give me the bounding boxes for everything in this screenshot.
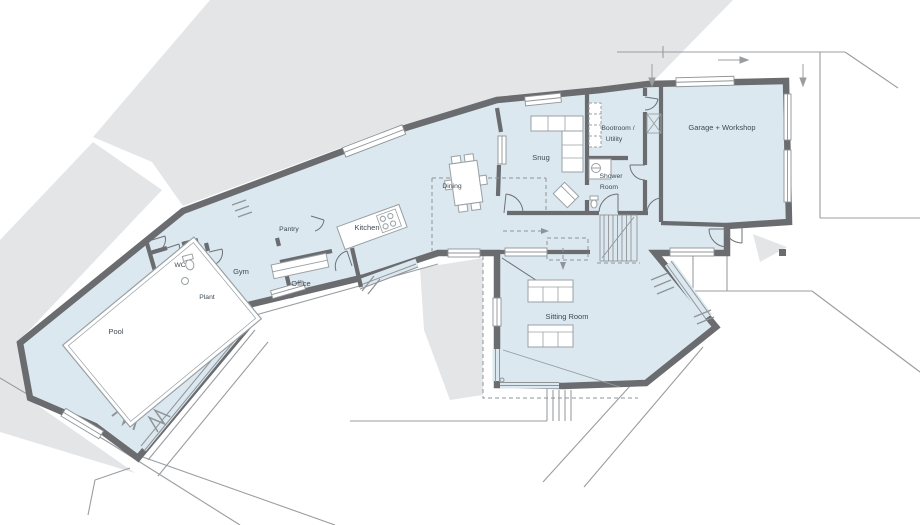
label-wc: WC bbox=[174, 262, 185, 269]
porch-post bbox=[779, 249, 786, 256]
sitting-sofa-2 bbox=[528, 325, 573, 347]
terrain-south-patch bbox=[420, 258, 483, 400]
label-snug: Snug bbox=[532, 153, 550, 162]
floor-plan-drawing: Pool WC Plant Gym Office Pantry Kitchen … bbox=[0, 0, 920, 525]
label-shower-line1: Shower bbox=[599, 173, 623, 180]
label-plant: Plant bbox=[199, 294, 215, 301]
staircase bbox=[600, 215, 637, 261]
label-pantry: Pantry bbox=[279, 226, 299, 233]
label-sitting: Sitting Room bbox=[546, 312, 589, 321]
site-porch-lines bbox=[693, 256, 920, 372]
terrain-porch-patch bbox=[753, 234, 787, 262]
label-bootroom-line1: Bootroom / bbox=[601, 125, 634, 132]
bootroom-cabinets bbox=[589, 103, 601, 147]
wc-basin bbox=[182, 278, 189, 285]
label-bootroom-line2: Utility bbox=[606, 136, 623, 143]
label-dining: Dining bbox=[442, 183, 461, 190]
label-gym: Gym bbox=[233, 267, 249, 276]
label-pool: Pool bbox=[108, 327, 123, 336]
label-shower-line2: Room bbox=[600, 184, 618, 191]
label-kitchen: Kitchen bbox=[354, 223, 379, 232]
label-garage: Garage + Workshop bbox=[688, 123, 755, 132]
shower-toilet bbox=[590, 196, 598, 208]
sitting-sofa-1 bbox=[528, 280, 573, 302]
floor-plan-canvas: Pool WC Plant Gym Office Pantry Kitchen … bbox=[0, 0, 920, 525]
label-office: Office bbox=[291, 279, 310, 288]
